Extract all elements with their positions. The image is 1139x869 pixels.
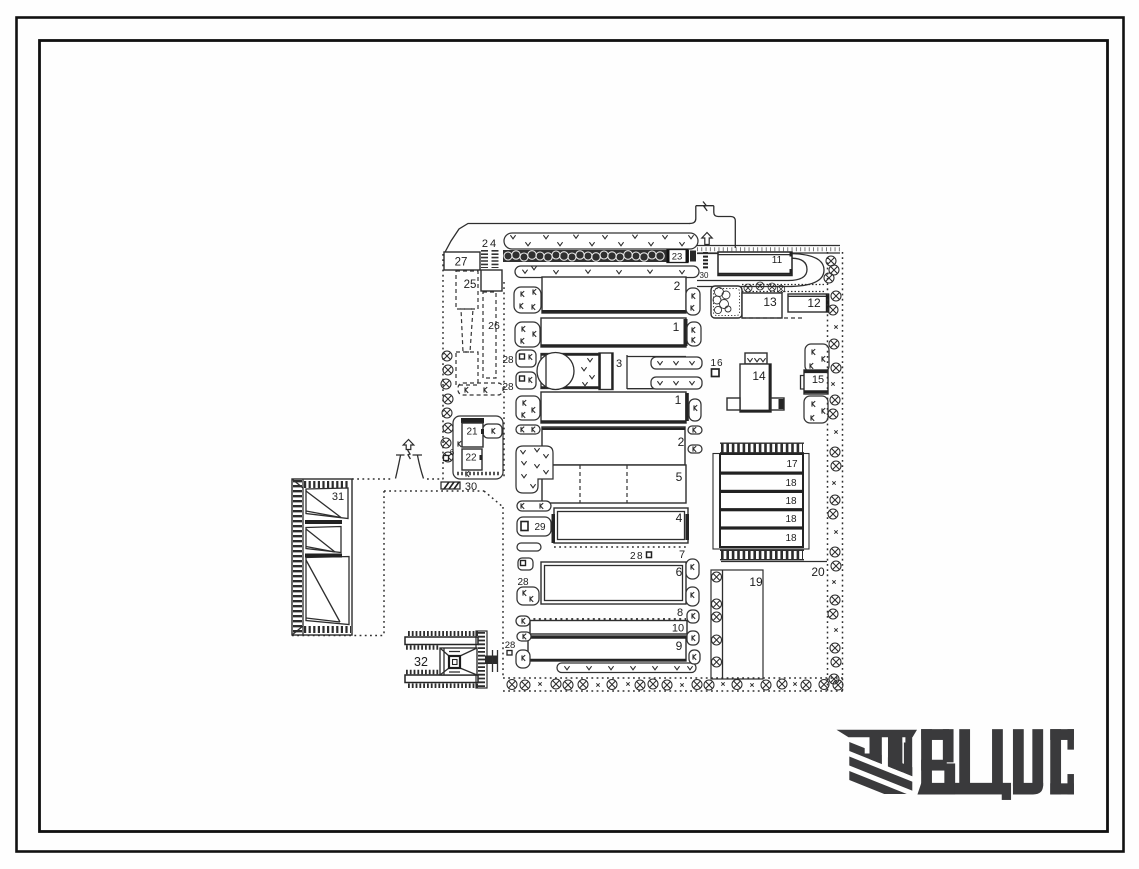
svg-text:2: 2 (674, 279, 681, 293)
svg-text:5: 5 (676, 470, 683, 484)
svg-text:25: 25 (464, 279, 477, 291)
svg-text:4: 4 (676, 511, 683, 525)
svg-text:15: 15 (812, 374, 824, 386)
svg-text:30: 30 (465, 481, 477, 493)
svg-text:16: 16 (710, 358, 723, 369)
svg-text:6: 6 (450, 448, 455, 457)
svg-text:29: 29 (534, 522, 546, 533)
svg-text:21: 21 (466, 427, 478, 438)
svg-text:22: 22 (465, 453, 477, 464)
svg-text:3: 3 (616, 358, 622, 370)
svg-text:28: 28 (517, 577, 529, 588)
svg-text:18: 18 (785, 533, 797, 544)
svg-text:18: 18 (785, 478, 797, 489)
svg-text:31: 31 (332, 491, 344, 503)
svg-text:13: 13 (763, 295, 777, 309)
svg-text:11: 11 (772, 255, 783, 266)
svg-text:20: 20 (811, 565, 825, 579)
svg-text:1: 1 (673, 320, 680, 334)
svg-text:23: 23 (672, 252, 683, 263)
svg-text:28: 28 (505, 640, 516, 651)
svg-text:6: 6 (676, 565, 683, 579)
svg-text:18: 18 (785, 514, 797, 525)
svg-text:2: 2 (678, 435, 685, 449)
svg-text:26: 26 (488, 320, 500, 332)
svg-text:14: 14 (752, 369, 766, 383)
svg-text:32: 32 (414, 655, 428, 669)
svg-text:17: 17 (786, 459, 798, 470)
svg-text:9: 9 (676, 639, 683, 653)
svg-text:28: 28 (502, 355, 514, 366)
svg-text:30: 30 (700, 271, 709, 280)
svg-text:28: 28 (502, 382, 514, 393)
svg-text:28: 28 (630, 551, 644, 562)
svg-text:18: 18 (785, 496, 797, 507)
svg-text:10: 10 (672, 623, 684, 635)
svg-text:24: 24 (482, 238, 498, 250)
svg-text:19: 19 (749, 575, 763, 589)
svg-text:27: 27 (455, 257, 468, 269)
svg-text:12: 12 (807, 296, 821, 310)
svg-text:7: 7 (679, 549, 685, 561)
svg-text:1: 1 (675, 393, 682, 407)
svg-text:8: 8 (677, 607, 683, 619)
